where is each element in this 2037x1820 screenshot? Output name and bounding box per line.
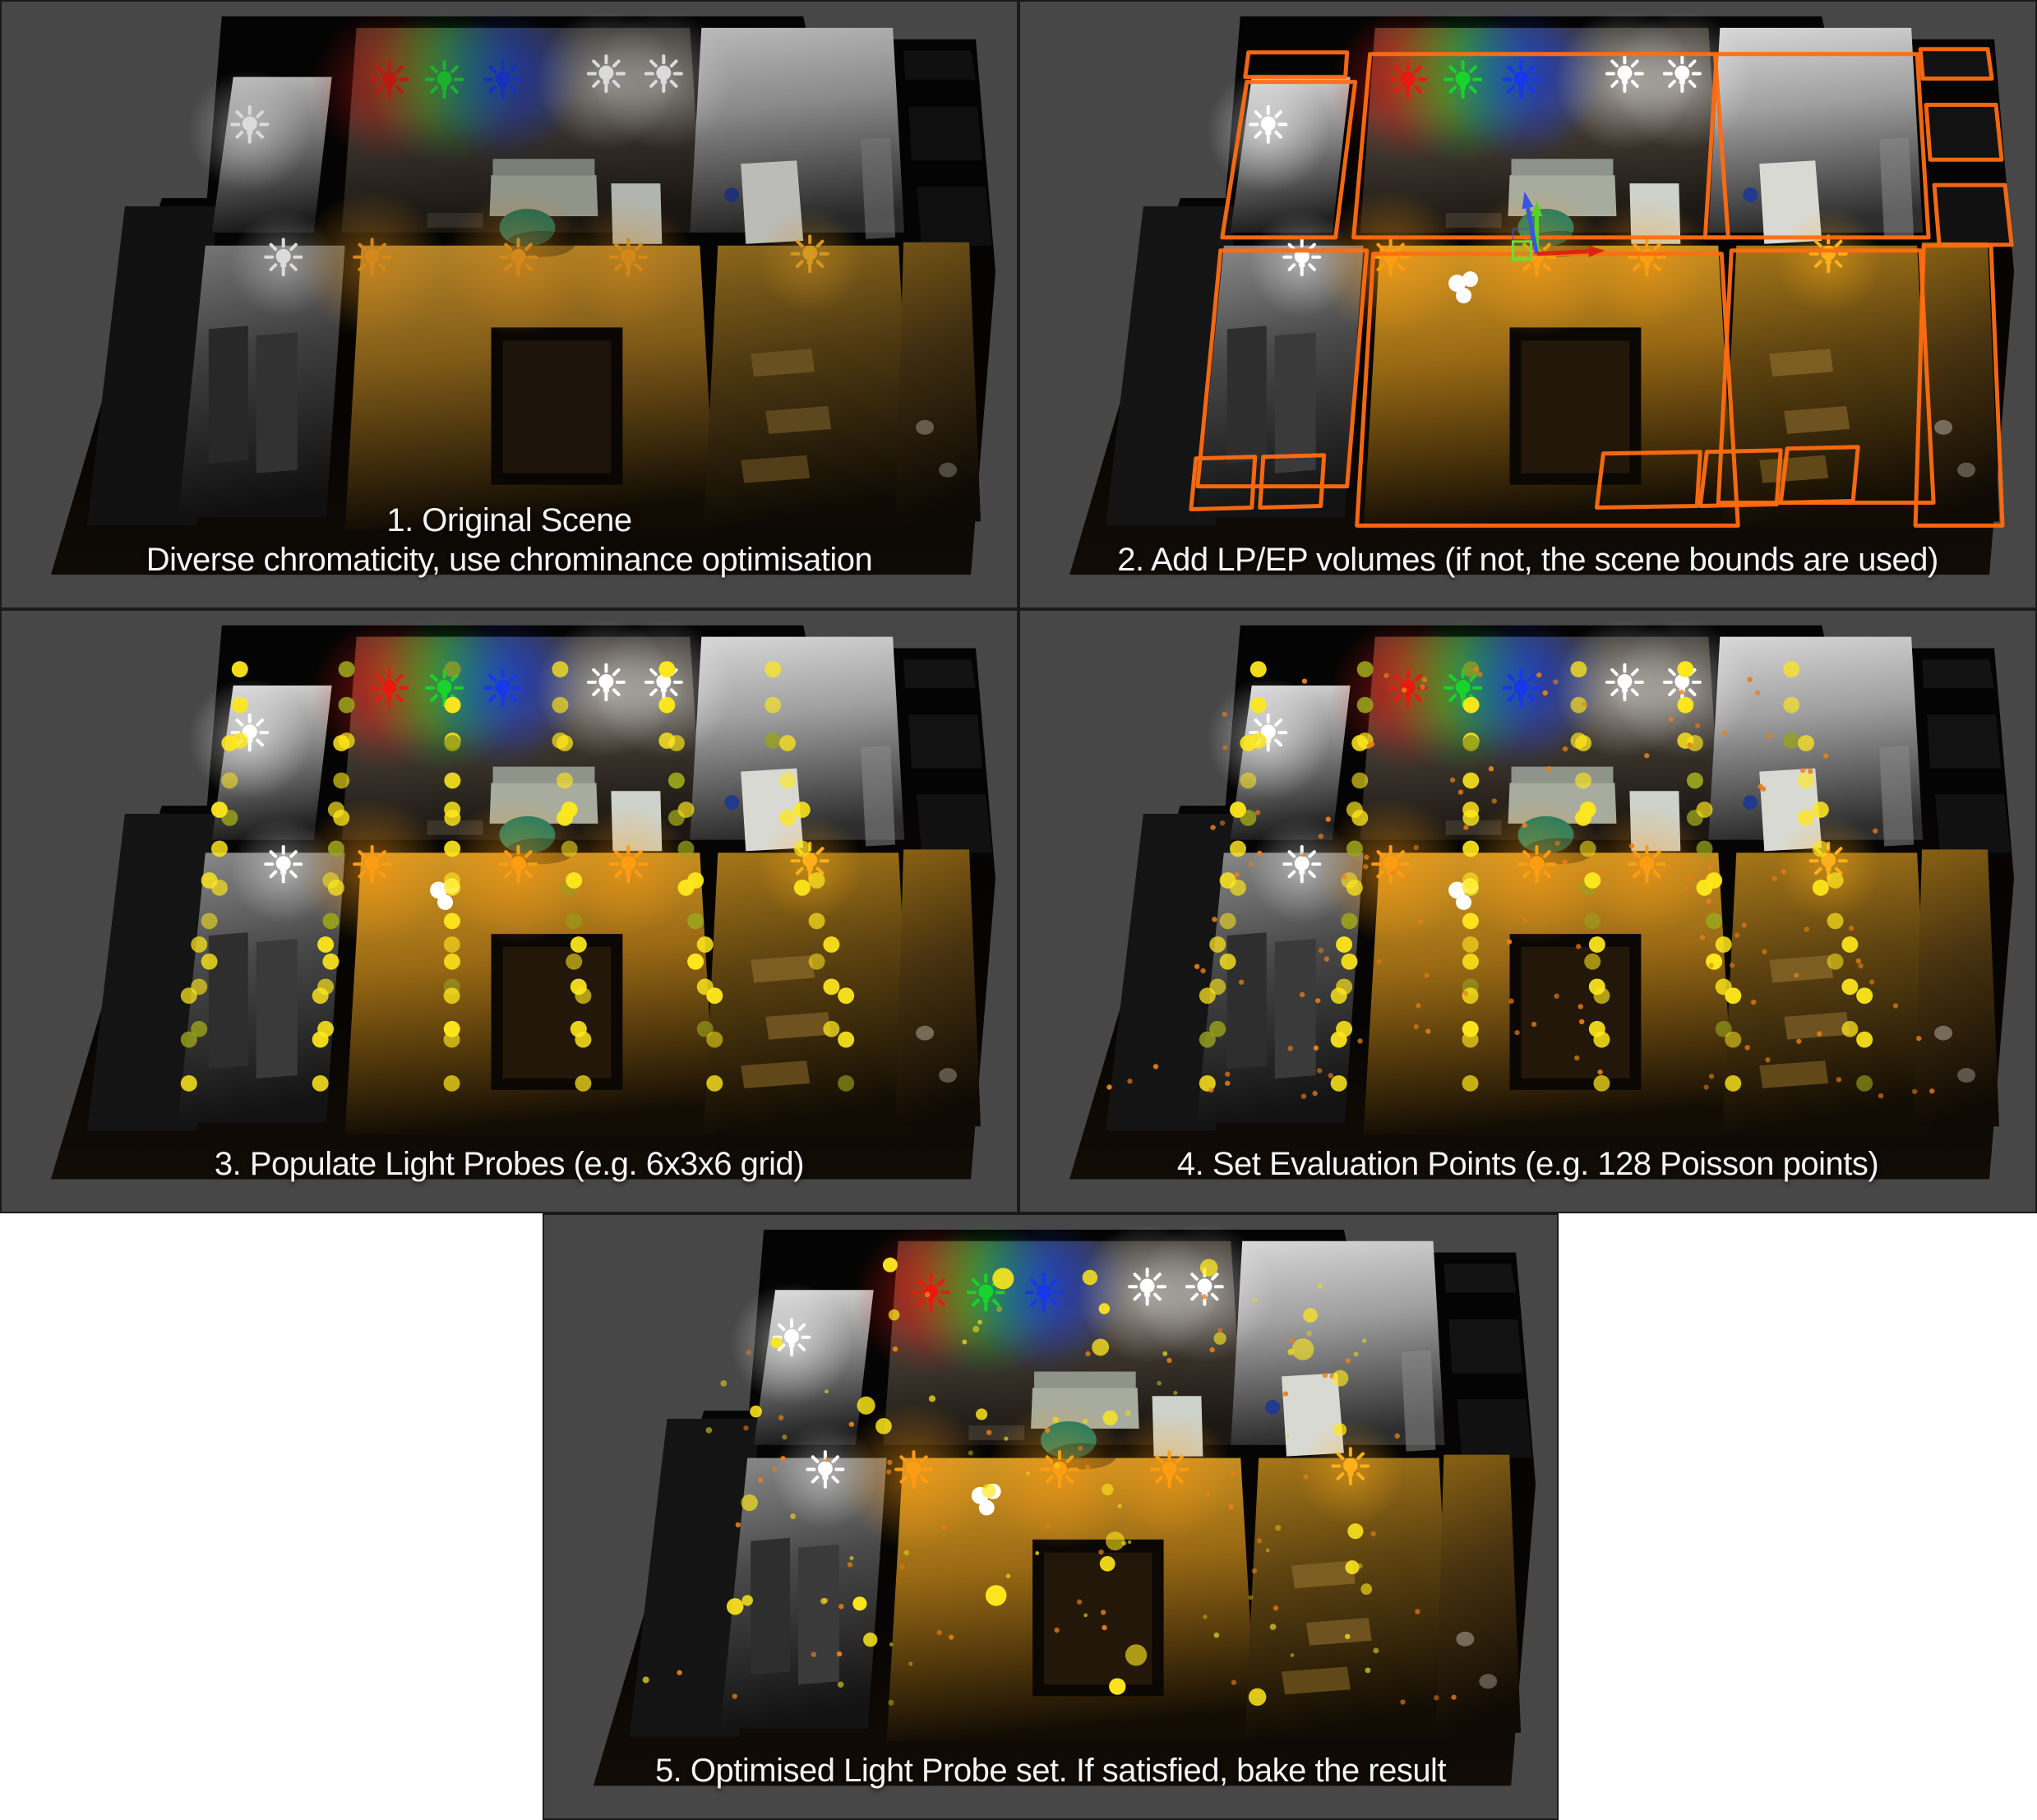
light-probe — [232, 697, 248, 714]
light-probe — [445, 697, 461, 714]
probe-speck — [1291, 1653, 1295, 1657]
evaluation-point — [1425, 1028, 1430, 1033]
evaluation-point — [848, 1562, 852, 1567]
right-wing-room-2 — [1927, 106, 2001, 160]
light-probe — [1706, 872, 1722, 889]
panel-4-evaluation-points: 4. Set Evaluation Points (e.g. 128 Poiss… — [1018, 609, 2037, 1213]
evaluation-point — [1101, 1610, 1106, 1614]
evaluation-point — [936, 1630, 941, 1635]
probe-speck — [1083, 1614, 1088, 1618]
evaluation-point — [925, 1292, 930, 1297]
light-orange-front-right-bulb-icon — [611, 239, 646, 275]
light-probe — [668, 735, 685, 751]
evaluation-point — [1563, 746, 1568, 751]
light-probe — [552, 697, 568, 714]
probe-speck — [1006, 1574, 1010, 1578]
evaluation-point — [1367, 743, 1372, 748]
probe-speck — [820, 1598, 827, 1605]
optimised-probe — [727, 1598, 744, 1614]
evaluation-point — [1153, 1064, 1158, 1069]
light-white-back-right-2-bulb-icon — [1665, 56, 1700, 91]
evaluation-point — [1054, 1628, 1059, 1633]
optimised-probe — [750, 1406, 762, 1418]
evaluation-point — [1492, 798, 1497, 803]
evaluation-point — [1709, 963, 1714, 968]
evaluation-point — [1205, 1491, 1210, 1496]
optimised-probe — [986, 1585, 1007, 1605]
optimised-probe — [1249, 1688, 1267, 1706]
evaluation-point — [1212, 917, 1217, 922]
evaluation-point — [1553, 679, 1558, 684]
optimised-probe — [1106, 1531, 1125, 1550]
probe-speck — [968, 1450, 973, 1455]
evaluation-point — [1255, 810, 1260, 815]
evaluation-point — [1695, 723, 1700, 728]
light-probe — [1331, 1032, 1347, 1048]
optimised-probe — [1303, 1308, 1318, 1323]
optimised-probe — [982, 1484, 995, 1498]
probe-speck — [1214, 1633, 1220, 1638]
light-white-front-left-bulb-icon — [807, 1452, 843, 1487]
light-probe — [201, 954, 218, 970]
evaluation-point — [758, 1477, 763, 1482]
light-probe — [444, 1075, 460, 1092]
light-probe — [1462, 912, 1479, 929]
light-probe — [1331, 987, 1347, 1004]
light-probe — [566, 954, 582, 970]
evaluation-point — [1751, 1000, 1756, 1005]
evaluation-point — [1314, 1046, 1319, 1051]
probe-speck — [1345, 1634, 1350, 1639]
light-probe — [1783, 661, 1799, 677]
light-probe — [575, 987, 591, 1004]
evaluation-point — [1326, 816, 1331, 821]
light-orange-hall-1-bulb-icon — [896, 1452, 931, 1487]
light-probe — [552, 661, 568, 677]
probe-speck — [1252, 1297, 1258, 1303]
light-orange-hall-1-bulb-icon — [354, 239, 390, 275]
light-probe — [1199, 987, 1216, 1004]
evaluation-point — [1257, 851, 1262, 856]
probe-speck — [889, 1642, 894, 1647]
evaluation-point — [1929, 1088, 1934, 1093]
light-probe — [1462, 936, 1479, 953]
optimised-probe — [1347, 1523, 1363, 1539]
light-orange-front-right-bulb-icon — [1629, 239, 1665, 275]
evaluation-point — [1700, 935, 1705, 940]
light-probe — [706, 1075, 723, 1092]
evaluation-point — [1222, 712, 1226, 717]
light-probe — [444, 987, 460, 1004]
optimised-probe — [1109, 1678, 1125, 1694]
evaluation-point — [1202, 1294, 1207, 1299]
classroom-desk-3 — [741, 455, 810, 483]
evaluation-point — [1730, 963, 1734, 968]
right-wing-room-1 — [1443, 1264, 1516, 1293]
right-wing-room-3 — [1935, 187, 2011, 246]
light-probe — [1250, 697, 1267, 714]
light-probe — [201, 872, 218, 889]
light-probe — [1697, 841, 1713, 857]
probe-sphere — [1456, 288, 1471, 303]
evaluation-point — [1522, 823, 1527, 828]
chair-blue — [1743, 795, 1758, 810]
evaluation-point — [1045, 1428, 1050, 1433]
probe-speck — [1306, 1331, 1312, 1337]
light-probe — [1230, 841, 1246, 857]
scene-render-volumes — [1020, 2, 2035, 607]
evaluation-point — [1363, 864, 1368, 869]
light-orange-front-right-bulb-icon — [1152, 1452, 1187, 1487]
optimised-probe — [1100, 1556, 1115, 1572]
evaluation-point — [1312, 1091, 1317, 1096]
light-green-bulb-icon — [427, 62, 462, 97]
light-probe — [1351, 773, 1368, 789]
light-probe — [1230, 801, 1246, 818]
light-probe — [221, 773, 238, 789]
optimised-probe — [1332, 1370, 1348, 1387]
evaluation-point — [1231, 1680, 1236, 1685]
evaluation-point — [1489, 766, 1494, 771]
shelf-front-left-1 — [209, 326, 248, 463]
evaluation-point — [1424, 972, 1429, 977]
scene-root — [1069, 611, 2014, 1179]
light-probe — [1357, 661, 1374, 677]
light-orange-far-right-bulb-icon — [792, 236, 828, 271]
optimised-probe — [1083, 1270, 1098, 1285]
light-probe — [687, 912, 704, 929]
shelf-front-left-1 — [1227, 326, 1267, 463]
light-orange-hall-2-bulb-icon — [1519, 847, 1554, 881]
probe-speck — [838, 1681, 844, 1688]
light-white-back-right-2-bulb-icon — [646, 56, 681, 91]
light-probe — [322, 912, 339, 929]
light-probe — [181, 1075, 197, 1092]
evaluation-point — [1077, 1600, 1082, 1605]
light-probe — [333, 735, 349, 751]
evaluation-point — [1302, 678, 1307, 683]
light-probe — [339, 661, 355, 677]
light-probe — [232, 661, 248, 677]
right-wing-room-2 — [908, 106, 982, 160]
light-probe — [697, 936, 714, 953]
light-probe — [794, 801, 811, 818]
optimised-probe — [857, 1397, 875, 1415]
right-wing-room-1 — [1922, 51, 1994, 80]
light-probe — [1856, 987, 1873, 1004]
light-probe — [1687, 773, 1703, 789]
light-orange-hall-1-bulb-icon — [1373, 239, 1408, 275]
light-probe — [1725, 987, 1741, 1004]
light-probe — [312, 1075, 329, 1092]
evaluation-point — [1257, 1538, 1262, 1543]
light-probe — [444, 1032, 460, 1048]
evaluation-point — [1747, 677, 1752, 681]
evaluation-point — [1682, 885, 1687, 890]
light-probe — [1593, 987, 1610, 1004]
classroom-desk-2 — [765, 1012, 831, 1040]
probe-sphere — [1456, 894, 1471, 910]
evaluation-point — [1765, 1057, 1770, 1062]
shelf-front-left-2 — [256, 939, 298, 1079]
evaluation-point — [1574, 1056, 1579, 1060]
light-probe — [1783, 697, 1799, 714]
light-probe — [1716, 936, 1732, 953]
optimised-probe — [1092, 1339, 1109, 1356]
light-probe — [181, 987, 197, 1004]
evaluation-point — [1450, 778, 1455, 783]
evaluation-point — [1300, 992, 1305, 997]
probe-speck — [972, 1326, 979, 1333]
room-far-right — [895, 849, 981, 1126]
evaluation-point — [1796, 1039, 1801, 1044]
light-probe — [1341, 912, 1357, 929]
light-white-front-left-bulb-icon — [266, 847, 301, 881]
optimised-probe — [1102, 1411, 1117, 1425]
light-probe — [1580, 841, 1596, 857]
shelf-front-left-2 — [1275, 332, 1316, 473]
light-probe — [444, 773, 460, 789]
evaluation-point — [941, 1525, 946, 1530]
light-probe — [317, 936, 334, 953]
evaluation-point — [1794, 972, 1799, 977]
evaluation-point — [1893, 1003, 1898, 1008]
light-probe — [823, 936, 839, 953]
evaluation-point — [1420, 684, 1425, 689]
gizmo-axis-red-x — [1536, 252, 1588, 254]
light-probe — [809, 912, 825, 929]
evaluation-point — [1390, 871, 1395, 875]
light-probe — [794, 841, 811, 857]
light-probe — [211, 841, 228, 857]
light-probe — [557, 773, 573, 789]
evaluation-point — [1523, 918, 1528, 923]
light-orange-far-right-bulb-icon — [1811, 236, 1846, 271]
probe-speck — [977, 1320, 982, 1325]
optimised-probe — [1292, 1338, 1314, 1360]
light-probe — [1462, 735, 1479, 751]
optimised-probe — [1125, 1644, 1147, 1665]
evaluation-point — [1200, 968, 1205, 973]
light-probe — [794, 880, 811, 896]
right-wing-room-3 — [917, 187, 992, 246]
light-probe — [1240, 735, 1256, 751]
evaluation-point — [1707, 898, 1711, 903]
light-white-back-right-1-bulb-icon — [1129, 1269, 1165, 1305]
light-probe — [322, 872, 339, 889]
light-probe — [312, 987, 329, 1004]
light-probe — [1331, 1075, 1347, 1092]
evaluation-point — [1555, 841, 1560, 846]
probe-speck — [1318, 1283, 1323, 1288]
shelf-back-right — [1879, 746, 1914, 846]
evaluation-point — [1817, 1031, 1822, 1036]
evaluation-point — [1434, 1695, 1439, 1700]
right-wing-room-1 — [903, 51, 976, 80]
light-probe — [444, 735, 460, 751]
light-probe — [1827, 954, 1844, 970]
scene-root — [594, 1215, 1536, 1785]
light-probe — [779, 773, 796, 789]
evaluation-point — [1687, 875, 1692, 880]
evaluation-point — [1085, 1351, 1090, 1356]
toilet-2 — [1957, 463, 1975, 478]
evaluation-point — [1230, 1471, 1235, 1476]
right-wing-room-1 — [903, 659, 976, 688]
optimised-probe — [976, 1408, 987, 1420]
evaluation-point — [1234, 872, 1239, 877]
evaluation-point — [949, 1634, 954, 1639]
probe-speck — [849, 1556, 853, 1560]
light-probe — [211, 801, 228, 818]
evaluation-point — [1800, 768, 1805, 773]
evaluation-point — [1273, 1605, 1278, 1610]
light-probe — [444, 954, 460, 970]
right-wing-room-1 — [1922, 659, 1994, 688]
light-probe — [706, 1032, 723, 1048]
evaluation-point — [838, 1604, 843, 1609]
evaluation-point — [1849, 926, 1854, 931]
evaluation-point — [1209, 1347, 1214, 1352]
evaluation-point — [1744, 1045, 1749, 1050]
light-probe — [1798, 735, 1814, 751]
light-blue-bulb-icon — [1027, 1275, 1062, 1310]
light-probe — [809, 954, 825, 970]
classroom-desk-3 — [1282, 1667, 1351, 1695]
evaluation-point — [1869, 979, 1874, 984]
evaluation-point — [1287, 1046, 1292, 1051]
optimised-probe — [770, 1337, 782, 1348]
probe-speck — [908, 1661, 912, 1665]
light-probe — [1841, 978, 1858, 995]
light-probe — [1220, 912, 1236, 929]
light-probe — [1462, 841, 1479, 857]
evaluation-point — [772, 1467, 777, 1471]
light-probe — [1593, 1032, 1610, 1048]
shelf-front-left-1 — [1227, 932, 1267, 1069]
probe-speck — [1248, 1595, 1253, 1600]
light-probe — [1346, 801, 1363, 818]
right-wing-room-2 — [1927, 714, 2001, 768]
light-white-front-left-bulb-icon — [266, 239, 301, 275]
evaluation-point — [1507, 940, 1512, 945]
evaluation-point — [1225, 1072, 1230, 1077]
evaluation-point — [1597, 1069, 1602, 1074]
light-orange-front-right-bulb-icon — [611, 847, 646, 881]
evaluation-point — [1371, 1531, 1376, 1536]
optimised-probe — [883, 1258, 898, 1273]
light-probe — [1841, 936, 1858, 953]
light-probe — [1462, 1075, 1479, 1092]
light-probe — [445, 661, 461, 677]
evaluation-point — [837, 1651, 842, 1656]
panel-3-populate-probes: 3. Populate Light Probes (e.g. 6x3x6 gri… — [0, 609, 1018, 1213]
probe-speck — [1362, 1338, 1366, 1342]
evaluation-point — [1400, 1699, 1405, 1704]
shelf-back-right — [861, 137, 895, 238]
right-wing-room-2 — [1448, 1319, 1522, 1373]
evaluation-point — [1319, 948, 1323, 953]
light-probe — [1336, 936, 1352, 953]
probe-speck — [1052, 1416, 1059, 1423]
toilet-1 — [1934, 1026, 1952, 1041]
evaluation-point — [1319, 834, 1323, 838]
light-probe — [444, 801, 460, 818]
optimised-probe — [1360, 1583, 1372, 1595]
classroom-desk-1 — [1769, 349, 1833, 376]
evaluation-point — [1078, 1446, 1083, 1451]
optimised-probe — [852, 1596, 866, 1610]
probe-speck — [706, 1427, 713, 1434]
classroom-desk-3 — [1759, 1060, 1828, 1088]
probe-speck — [1275, 1525, 1281, 1531]
light-probe — [322, 954, 339, 970]
evaluation-point — [1166, 1358, 1171, 1363]
panel-5-optimised-set: 5. Optimised Light Probe set. If satisfi… — [543, 1213, 1559, 1820]
light-orange-hall-2-bulb-icon — [1042, 1452, 1078, 1487]
chair-blue — [724, 187, 739, 202]
probe-speck — [962, 1339, 967, 1344]
evaluation-point — [1582, 701, 1587, 706]
light-probe — [1575, 735, 1591, 751]
evaluation-point — [1458, 789, 1463, 794]
light-probe — [561, 801, 578, 818]
evaluation-point — [1858, 963, 1863, 968]
evaluation-point — [1357, 1038, 1362, 1043]
light-probe — [1463, 697, 1480, 714]
evaluation-point — [1825, 849, 1830, 854]
scene-root — [51, 611, 995, 1179]
light-blue-bulb-icon — [1503, 671, 1539, 705]
evaluation-point — [887, 1460, 892, 1465]
light-probe — [1584, 872, 1600, 889]
light-probe — [1827, 872, 1844, 889]
evaluation-point — [1669, 717, 1674, 722]
light-probe — [566, 872, 582, 889]
evaluation-point — [1106, 1084, 1111, 1089]
panel-1-original-scene: 1. Original Scene Diverse chromaticity, … — [0, 0, 1018, 609]
optimised-probe — [1200, 1259, 1218, 1276]
light-probe — [838, 987, 854, 1004]
light-probe — [823, 1021, 839, 1037]
probe-speck — [1365, 1668, 1371, 1674]
shelf-front-left-1 — [209, 932, 248, 1069]
light-probe — [823, 978, 839, 995]
light-probe — [1813, 880, 1829, 896]
evaluation-point — [1543, 691, 1548, 695]
light-probe — [687, 954, 704, 970]
evaluation-point — [1303, 1474, 1308, 1479]
light-probe — [575, 1032, 591, 1048]
probe-speck — [1354, 1351, 1359, 1356]
evaluation-point — [1194, 964, 1199, 969]
light-probe — [687, 872, 704, 889]
shelf-front-left-2 — [256, 332, 298, 473]
light-white-front-left-bulb-icon — [1284, 239, 1319, 275]
classroom-desk-3 — [1759, 455, 1828, 483]
light-probe — [1798, 773, 1814, 789]
light-orange-hall-1-bulb-icon — [354, 847, 390, 881]
evaluation-point — [1346, 1358, 1351, 1363]
light-white-back-left-bulb-icon — [1250, 107, 1286, 142]
evaluation-point — [1514, 1030, 1519, 1035]
light-probe — [312, 1032, 329, 1048]
light-red-bulb-icon — [913, 1275, 949, 1310]
light-probe — [764, 697, 781, 714]
probe-speck — [1157, 1381, 1162, 1386]
light-probe — [1706, 912, 1722, 929]
light-probe — [779, 735, 796, 751]
